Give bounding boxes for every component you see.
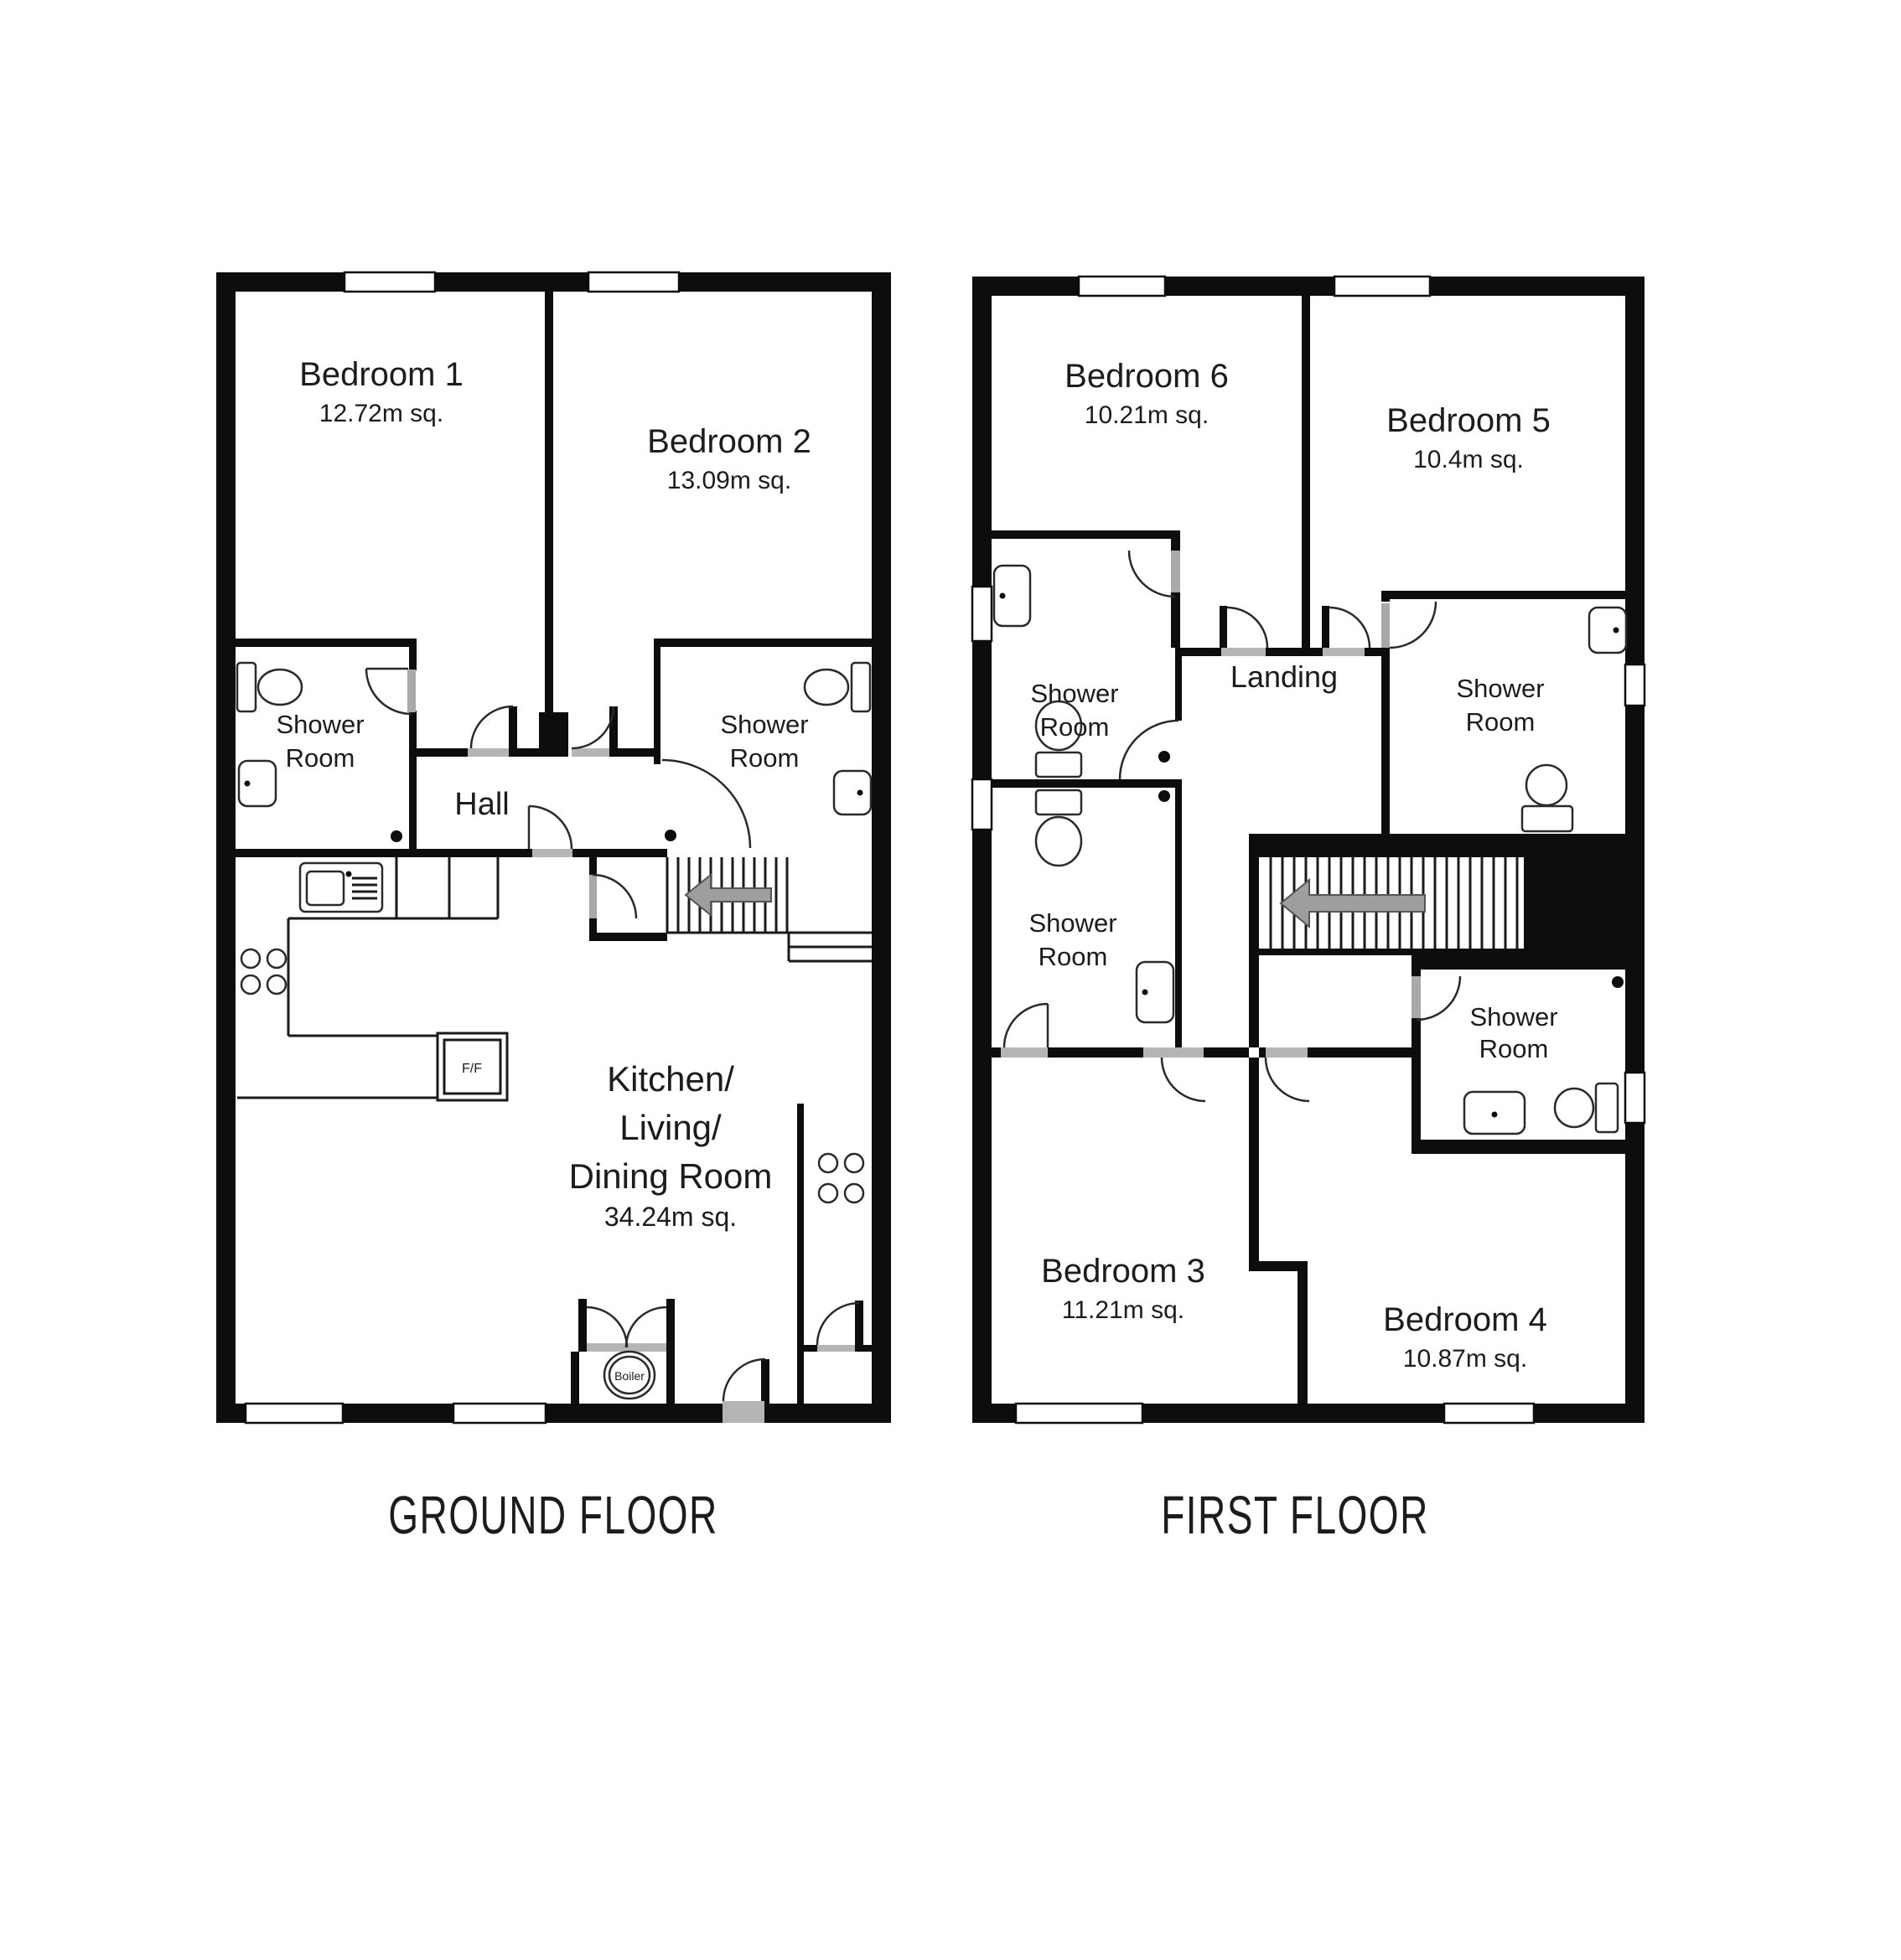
- first-stairs: [1271, 857, 1517, 949]
- svg-text:Room: Room: [1466, 707, 1536, 737]
- room-area-bedroom-1: 12.72m sq.: [319, 400, 443, 427]
- boiler-label: Boiler: [614, 1369, 645, 1383]
- room-label-bedroom-6: Bedroom 6: [1064, 358, 1229, 395]
- window: [972, 587, 992, 641]
- room-label-bedroom-4: Bedroom 4: [1383, 1301, 1547, 1338]
- door-shower-top-right: [1381, 603, 1390, 648]
- window: [972, 779, 992, 830]
- room-label-hall: Hall: [454, 787, 509, 822]
- door-bedroom-6: [1221, 648, 1266, 656]
- first-floor-plan: Bedroom 6 10.21m sq. Bedroom 5 10.4m sq.…: [972, 277, 1645, 1545]
- door-shower-mid-right: [1412, 976, 1421, 1018]
- door-stop-dot: [1158, 751, 1170, 763]
- door-shower-upper-left: [1171, 551, 1180, 592]
- door-bedroom-5: [1323, 648, 1365, 656]
- room-area-bedroom-5: 10.4m sq.: [1413, 446, 1524, 473]
- window: [1016, 1404, 1142, 1423]
- shower-tray: [239, 761, 276, 806]
- door-shower-left: [407, 670, 416, 712]
- door-bedroom-3: [1143, 1047, 1204, 1058]
- room-label-shower-top-right: Shower: [1456, 674, 1544, 703]
- room-label-shower-right: Shower: [720, 710, 808, 739]
- door-shower-lower-left: [1001, 1047, 1048, 1058]
- stairs-direction-arrow: [686, 875, 771, 915]
- svg-text:Room: Room: [730, 743, 800, 773]
- toilet: [1036, 790, 1081, 866]
- window: [1079, 277, 1165, 296]
- svg-text:Room: Room: [1039, 942, 1108, 971]
- room-area-bedroom-6: 10.21m sq.: [1085, 401, 1209, 429]
- room-label-bedroom-1: Bedroom 1: [299, 356, 464, 393]
- ground-windows: [246, 272, 679, 1423]
- door-stairs-cupboard: [589, 875, 597, 918]
- door-bedroom-1: [468, 748, 509, 757]
- toilet: [1522, 765, 1572, 831]
- window: [246, 1404, 343, 1423]
- door-hall-kitchen: [532, 849, 572, 857]
- boiler: Boiler: [604, 1352, 655, 1399]
- room-label-shower-upper-left: Shower: [1030, 679, 1118, 708]
- floorplan-canvas: F/F Boiler: [0, 0, 1901, 1960]
- room-label-bedroom-3: Bedroom 3: [1041, 1253, 1205, 1290]
- ground-floor-title: GROUND FLOOR: [388, 1486, 718, 1545]
- toilet: [237, 663, 302, 711]
- window: [344, 272, 435, 292]
- toilet: [1555, 1083, 1618, 1132]
- shower-tray: [1464, 1092, 1525, 1134]
- kitchen-sink: [300, 863, 382, 912]
- door-stop-dot: [1158, 790, 1170, 802]
- ground-stairs: [667, 857, 872, 961]
- shower-tray: [1589, 608, 1626, 653]
- door-stop-dot: [1612, 976, 1624, 988]
- window: [1334, 277, 1430, 296]
- door-lobby: [817, 1345, 855, 1352]
- window: [588, 272, 679, 292]
- ground-floor-plan: F/F Boiler: [216, 272, 891, 1545]
- window: [1625, 1073, 1645, 1123]
- door-bedroom-4: [1266, 1047, 1308, 1058]
- room-area-kitchen: 34.24m sq.: [604, 1202, 737, 1232]
- ground-kitchen-units: F/F Boiler: [237, 857, 863, 1399]
- door-shower-from-landing: [1120, 721, 1178, 779]
- fridge-freezer-label: F/F: [462, 1062, 482, 1076]
- kitchen-hob-right: [819, 1154, 863, 1202]
- room-area-bedroom-4: 10.87m sq.: [1403, 1345, 1527, 1373]
- svg-text:Room: Room: [1479, 1034, 1549, 1063]
- first-floor-title: FIRST FLOOR: [1161, 1486, 1429, 1545]
- room-area-bedroom-3: 11.21m sq.: [1062, 1296, 1184, 1324]
- toilet: [805, 663, 870, 711]
- room-label-shower-mid-right: Shower: [1469, 1002, 1557, 1032]
- fridge-freezer: F/F: [438, 1033, 507, 1100]
- svg-text:Room: Room: [1040, 712, 1110, 742]
- room-label-bedroom-5: Bedroom 5: [1386, 402, 1551, 439]
- shower-tray: [1137, 962, 1173, 1022]
- shower-tray: [834, 771, 871, 815]
- ground-doors: [366, 669, 859, 1423]
- door-rear: [723, 1401, 764, 1423]
- svg-text:Room: Room: [286, 743, 355, 773]
- room-area-bedroom-2: 13.09m sq.: [667, 467, 791, 494]
- first-interior-walls: [992, 296, 1629, 1404]
- door-stop-dot: [665, 830, 676, 841]
- room-label-kitchen: Kitchen/: [607, 1059, 734, 1099]
- kitchen-hob-left: [241, 949, 286, 994]
- room-label-bedroom-2: Bedroom 2: [647, 423, 811, 460]
- room-label-shower-lower-left: Shower: [1028, 908, 1116, 938]
- shower-tray: [994, 566, 1030, 626]
- room-label-landing: Landing: [1230, 659, 1338, 694]
- window: [1444, 1404, 1534, 1423]
- room-label-shower-left: Shower: [276, 710, 364, 739]
- door-stop-dot: [391, 830, 402, 842]
- window: [453, 1404, 546, 1423]
- svg-text:Dining Room: Dining Room: [569, 1156, 773, 1196]
- svg-text:Living/: Living/: [619, 1108, 722, 1147]
- door-bedroom-2: [572, 748, 609, 757]
- window: [1625, 665, 1645, 706]
